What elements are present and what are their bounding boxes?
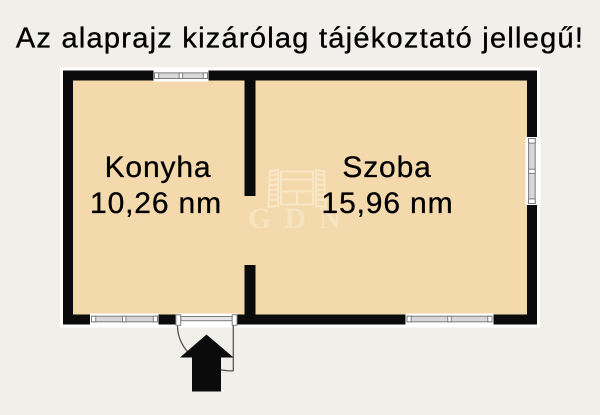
svg-text:10,26 nm: 10,26 nm (90, 187, 222, 220)
svg-text:Az alaprajz kizárólag tájékozt: Az alaprajz kizárólag tájékoztató jelleg… (16, 23, 584, 55)
svg-text:Szoba: Szoba (342, 151, 431, 184)
svg-text:Konyha: Konyha (105, 151, 212, 184)
svg-text:15,96 nm: 15,96 nm (322, 187, 454, 220)
